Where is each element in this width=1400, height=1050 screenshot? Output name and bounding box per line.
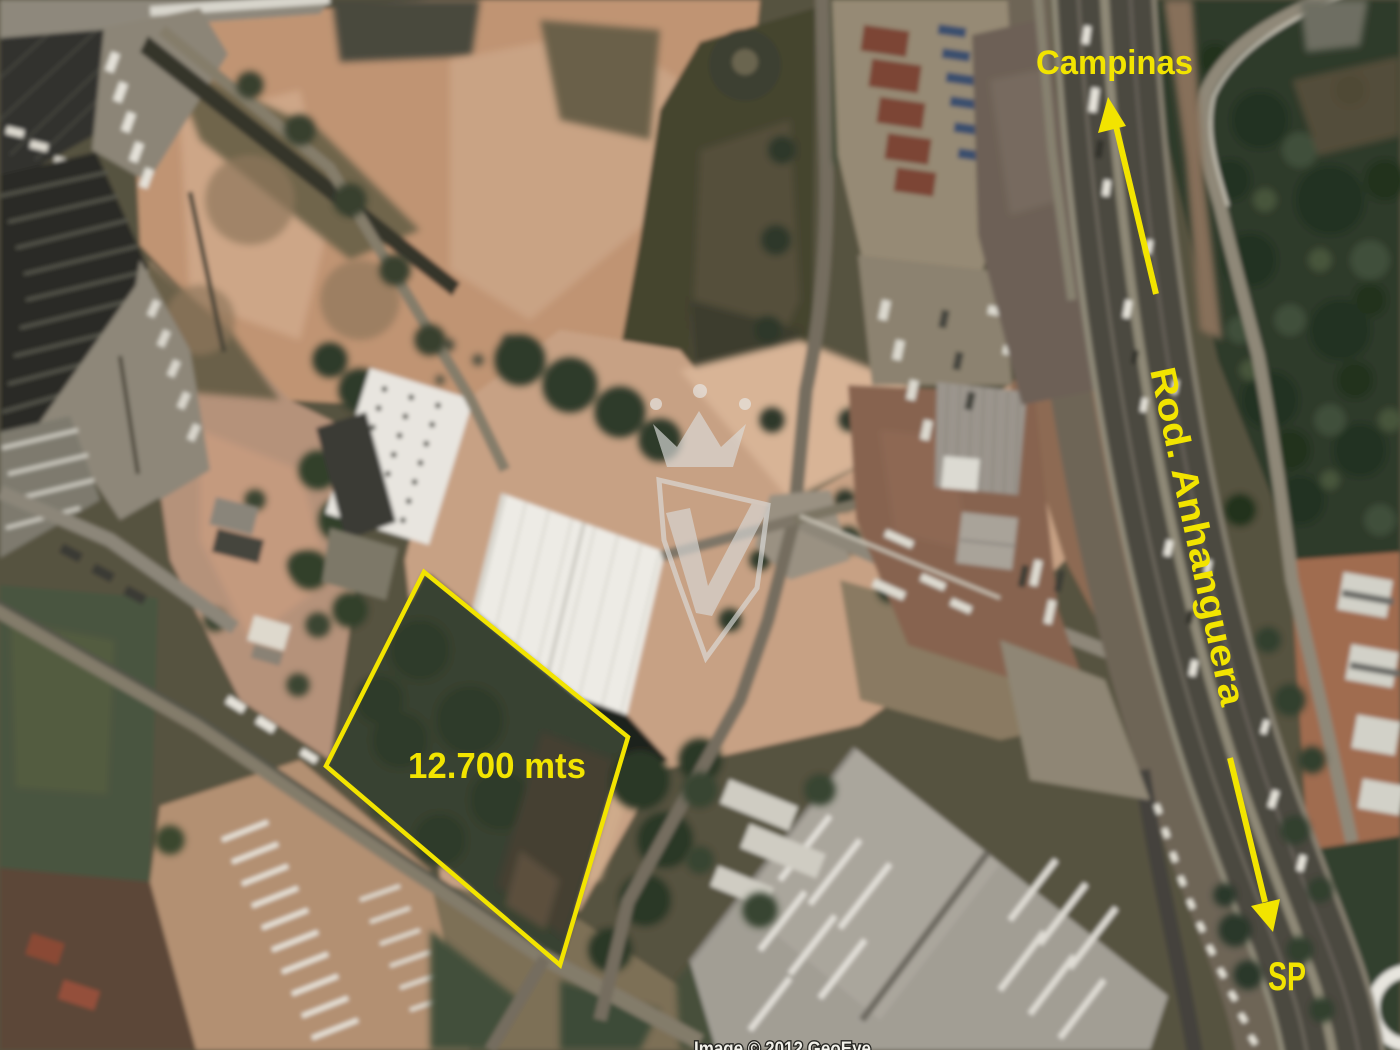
svg-text:Campinas: Campinas <box>1036 44 1193 82</box>
svg-text:12.700 mts: 12.700 mts <box>408 745 586 786</box>
svg-text:SP: SP <box>1268 955 1306 999</box>
svg-text:Image © 2012 GeoEye: Image © 2012 GeoEye <box>694 1039 871 1050</box>
